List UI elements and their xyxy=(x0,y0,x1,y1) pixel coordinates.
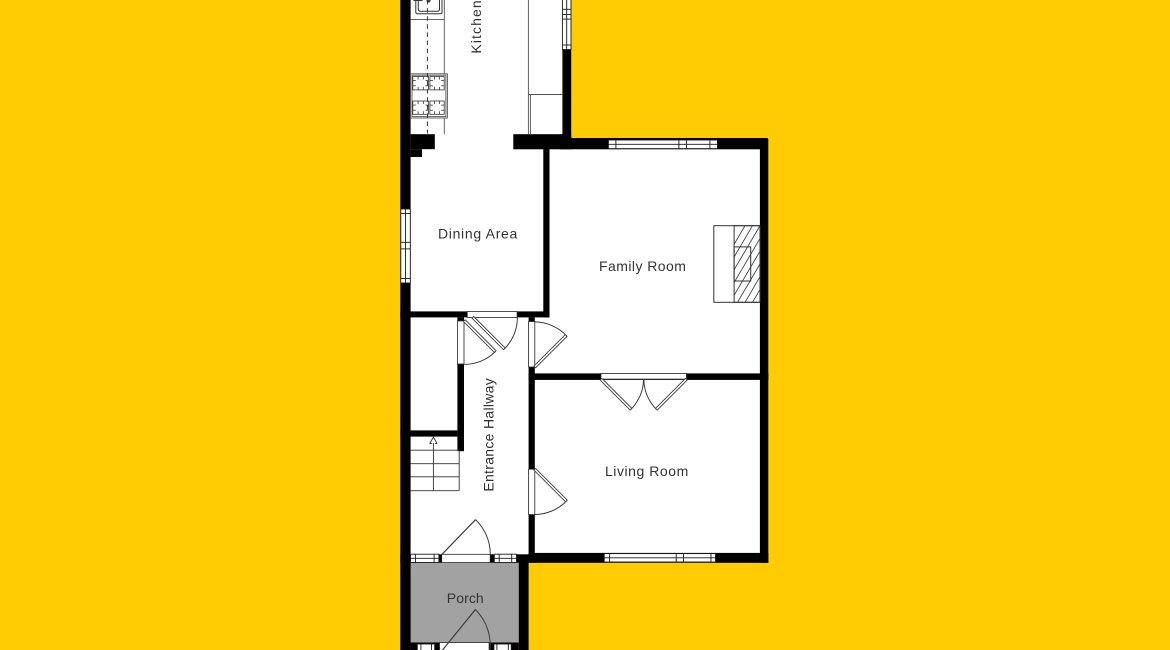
svg-text:Dining Area: Dining Area xyxy=(438,226,518,242)
svg-text:Kitchen: Kitchen xyxy=(468,0,484,54)
svg-text:Entrance Hallway: Entrance Hallway xyxy=(481,378,497,492)
svg-text:Family Room: Family Room xyxy=(599,258,686,274)
svg-text:Porch: Porch xyxy=(447,590,484,606)
svg-text:Living Room: Living Room xyxy=(605,463,689,479)
